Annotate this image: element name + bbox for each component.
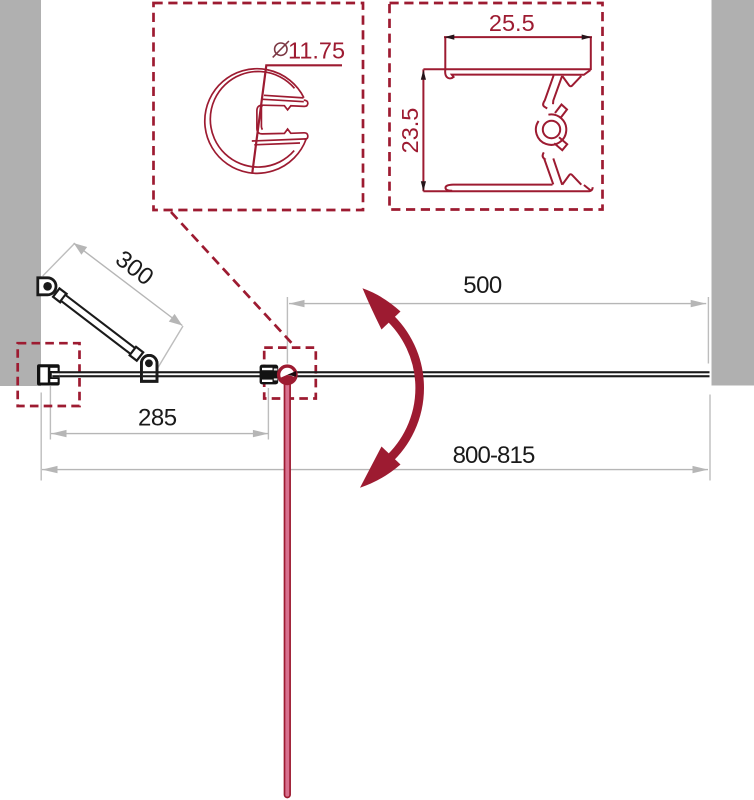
svg-text:285: 285 [138,405,177,432]
svg-text:500: 500 [463,272,502,299]
svg-text:800-815: 800-815 [453,442,535,469]
svg-text:25.5: 25.5 [489,10,535,36]
svg-text:300: 300 [110,245,158,291]
svg-text:23.5: 23.5 [397,108,423,154]
svg-text:11.75: 11.75 [288,38,345,64]
